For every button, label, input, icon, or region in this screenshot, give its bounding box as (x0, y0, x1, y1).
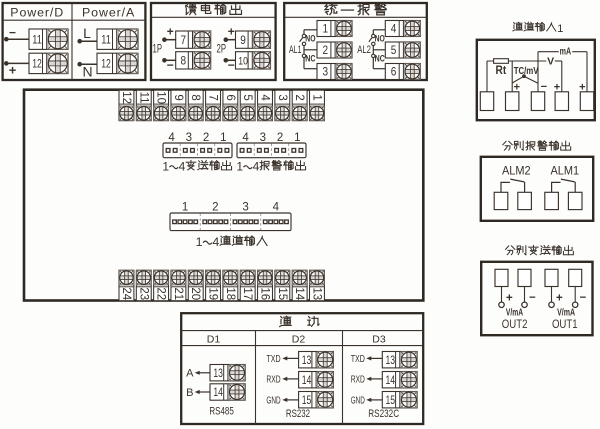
svg-text:4: 4 (391, 24, 397, 36)
svg-text:1: 1 (310, 94, 322, 100)
svg-text:4: 4 (259, 94, 271, 101)
svg-text:V/mA: V/mA (506, 308, 523, 319)
svg-text:14: 14 (293, 287, 305, 300)
svg-text:11: 11 (137, 92, 149, 104)
svg-text:11: 11 (32, 33, 42, 47)
svg-text:NC: NC (375, 53, 385, 64)
svg-text:RS232C: RS232C (368, 408, 399, 420)
svg-text:2: 2 (277, 132, 283, 144)
svg-text:Power/A: Power/A (82, 6, 135, 20)
svg-text:9: 9 (240, 33, 246, 47)
svg-text:RXD: RXD (351, 374, 365, 386)
svg-text:13: 13 (302, 355, 312, 367)
svg-text:14: 14 (302, 375, 312, 387)
svg-text:NO: NO (375, 34, 385, 45)
svg-text:+: + (506, 293, 513, 305)
svg-text:8: 8 (181, 54, 187, 68)
svg-text:13: 13 (310, 287, 322, 300)
svg-text:+: + (228, 25, 235, 39)
svg-text:15: 15 (385, 395, 395, 407)
svg-text:1: 1 (322, 24, 328, 36)
svg-text:2: 2 (293, 94, 305, 100)
svg-text:7: 7 (181, 33, 187, 47)
svg-text:RS232: RS232 (286, 408, 310, 420)
svg-text:L: L (83, 25, 91, 41)
svg-text:1: 1 (294, 132, 300, 144)
svg-text:13: 13 (213, 368, 223, 380)
svg-text:5: 5 (391, 45, 397, 57)
svg-text:2: 2 (322, 45, 328, 57)
svg-text:17: 17 (241, 287, 253, 300)
svg-text:20: 20 (189, 287, 201, 300)
svg-text:13: 13 (385, 355, 395, 367)
svg-text:+: + (514, 82, 520, 94)
svg-text:1: 1 (196, 235, 203, 249)
svg-text:18: 18 (224, 287, 236, 300)
svg-text:−: − (580, 292, 587, 304)
svg-text:4: 4 (273, 201, 280, 213)
svg-text:19: 19 (207, 287, 219, 300)
svg-text:AL1: AL1 (289, 44, 302, 56)
svg-text:16: 16 (259, 287, 271, 300)
svg-text:3: 3 (186, 132, 192, 144)
svg-text:2P: 2P (217, 44, 227, 56)
svg-text:TXD: TXD (351, 353, 365, 365)
svg-text:9: 9 (172, 94, 184, 100)
svg-text:2: 2 (203, 132, 209, 144)
svg-text:RS485: RS485 (209, 405, 234, 417)
svg-text:+: + (554, 82, 560, 94)
svg-text:D3: D3 (372, 334, 386, 346)
svg-text:Power/D: Power/D (10, 6, 64, 20)
svg-text:1: 1 (182, 201, 188, 213)
svg-text:15: 15 (302, 395, 312, 407)
svg-text:OUT2: OUT2 (502, 319, 528, 331)
svg-text:−: − (541, 81, 547, 93)
svg-text:4: 4 (179, 160, 186, 174)
svg-text:2: 2 (212, 201, 218, 213)
svg-text:ALM2: ALM2 (502, 163, 531, 177)
svg-text:−: − (9, 26, 16, 40)
svg-text:7: 7 (207, 94, 219, 100)
svg-text:8: 8 (189, 94, 201, 100)
svg-text:mA: mA (560, 45, 572, 57)
svg-text:14: 14 (385, 375, 395, 387)
svg-text:1P: 1P (153, 44, 163, 56)
svg-text:12: 12 (32, 57, 42, 71)
svg-text:5: 5 (241, 94, 253, 100)
svg-text:14: 14 (213, 387, 223, 399)
svg-text:11: 11 (101, 33, 111, 47)
svg-text:4: 4 (253, 160, 260, 174)
svg-text:6: 6 (391, 67, 397, 79)
svg-text:D2: D2 (292, 334, 306, 346)
svg-text:1: 1 (162, 160, 169, 174)
svg-text:1: 1 (557, 23, 563, 35)
svg-text:+: + (579, 82, 585, 94)
svg-text:4: 4 (168, 132, 175, 144)
svg-text:15: 15 (276, 287, 288, 300)
svg-text:−: − (228, 58, 235, 72)
svg-text:OUT1: OUT1 (552, 319, 578, 331)
svg-text:TXD: TXD (266, 353, 280, 365)
svg-text:4: 4 (242, 132, 249, 144)
svg-text:4: 4 (212, 235, 219, 249)
svg-text:NC: NC (305, 53, 315, 64)
svg-text:V: V (547, 55, 554, 67)
svg-text:N: N (82, 63, 92, 79)
svg-text:1: 1 (220, 132, 226, 144)
svg-text:A: A (186, 367, 194, 379)
svg-text:3: 3 (276, 94, 288, 100)
svg-text:24: 24 (120, 287, 132, 300)
svg-text:RXD: RXD (266, 374, 280, 386)
svg-text:B: B (186, 387, 193, 399)
svg-text:12: 12 (101, 57, 111, 71)
svg-text:12: 12 (120, 91, 132, 104)
svg-text:Rt: Rt (496, 63, 507, 77)
svg-text:22: 22 (155, 287, 167, 300)
svg-text:10: 10 (155, 91, 167, 104)
svg-text:3: 3 (260, 132, 266, 144)
svg-text:21: 21 (172, 287, 184, 300)
svg-text:NO: NO (305, 34, 315, 45)
svg-text:TC/mV: TC/mV (514, 66, 539, 77)
svg-text:GND: GND (266, 395, 280, 407)
svg-text:−: − (529, 292, 536, 304)
svg-text:ALM1: ALM1 (550, 163, 579, 177)
svg-text:1: 1 (236, 160, 243, 174)
svg-text:GND: GND (351, 395, 365, 407)
svg-text:AL2: AL2 (357, 44, 371, 56)
svg-text:V/mA: V/mA (557, 308, 575, 319)
svg-text:−: − (167, 58, 174, 72)
svg-text:+: + (556, 293, 563, 305)
svg-text:23: 23 (137, 287, 149, 300)
svg-text:D1: D1 (207, 334, 221, 346)
svg-text:3: 3 (242, 201, 248, 213)
svg-text:+: + (167, 25, 174, 39)
svg-text:6: 6 (224, 94, 236, 100)
svg-text:10: 10 (238, 55, 248, 67)
svg-text:3: 3 (322, 67, 328, 79)
svg-text:+: + (9, 62, 17, 77)
